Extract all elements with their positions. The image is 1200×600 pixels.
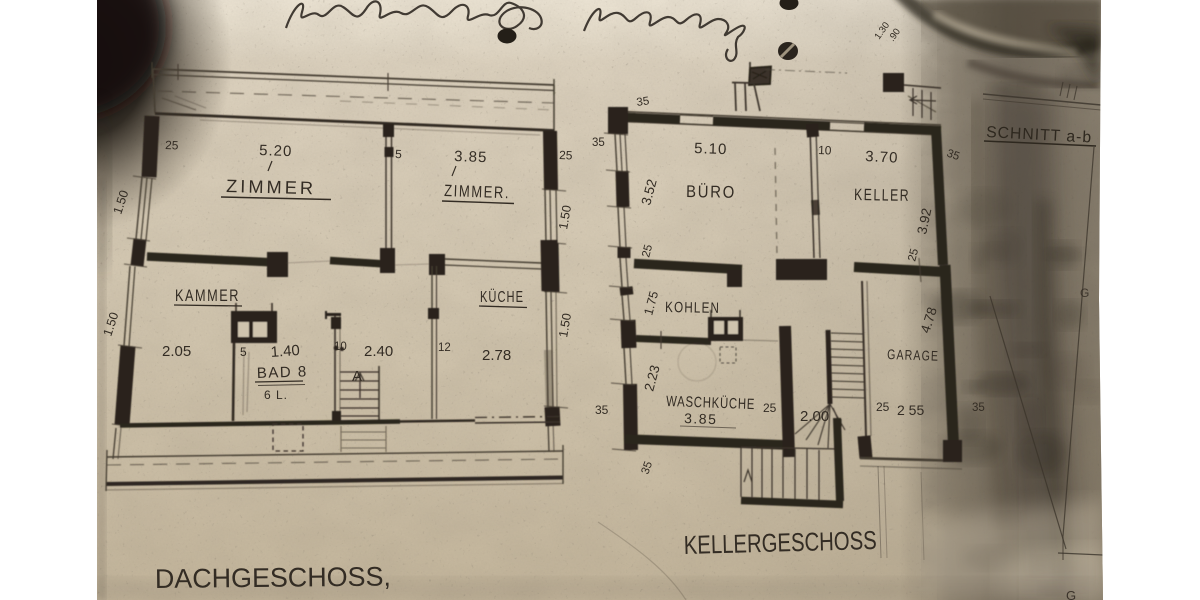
svg-text:A: A xyxy=(352,368,362,385)
svg-text:3.85: 3.85 xyxy=(684,410,718,427)
svg-text:5.20: 5.20 xyxy=(259,142,293,160)
svg-text:KELLER: KELLER xyxy=(854,186,910,205)
svg-text:3.85: 3.85 xyxy=(454,148,488,166)
svg-text:25: 25 xyxy=(763,401,777,415)
svg-text:25: 25 xyxy=(876,400,890,414)
svg-text:GARAGE: GARAGE xyxy=(887,346,940,364)
svg-text:BAD 8: BAD 8 xyxy=(257,363,308,382)
svg-text:2.78: 2.78 xyxy=(482,347,511,364)
svg-text:ZIMMER: ZIMMER xyxy=(226,176,316,198)
svg-text:1.40: 1.40 xyxy=(270,342,300,361)
svg-text:ZIMMER.: ZIMMER. xyxy=(444,182,511,202)
svg-text:BÜRO: BÜRO xyxy=(686,182,736,202)
svg-text:5: 5 xyxy=(395,147,402,161)
svg-text:KELLERGESCHOSS: KELLERGESCHOSS xyxy=(683,525,877,560)
svg-text:DACHGESCHOSS,: DACHGESCHOSS, xyxy=(155,562,391,594)
svg-text:2.40: 2.40 xyxy=(364,343,393,360)
svg-text:5.10: 5.10 xyxy=(694,140,728,158)
svg-text:G: G xyxy=(1066,588,1076,600)
svg-text:3.70: 3.70 xyxy=(865,148,899,167)
svg-text:35: 35 xyxy=(592,137,605,149)
svg-text:2 55: 2 55 xyxy=(897,402,924,418)
svg-text:6 L.: 6 L. xyxy=(264,388,288,402)
svg-text:35: 35 xyxy=(972,402,985,414)
svg-text:35: 35 xyxy=(595,403,609,417)
svg-text:G: G xyxy=(1080,286,1089,300)
svg-text:KOHLEN: KOHLEN xyxy=(665,299,720,317)
svg-text:5: 5 xyxy=(240,345,247,359)
svg-text:35: 35 xyxy=(636,95,650,109)
svg-text:2.05: 2.05 xyxy=(162,343,191,360)
svg-text:10: 10 xyxy=(818,143,832,157)
svg-text:12: 12 xyxy=(438,342,451,354)
svg-text:KÜCHE: KÜCHE xyxy=(480,288,524,306)
svg-text:2.00: 2.00 xyxy=(800,408,829,425)
svg-text:KAMMER: KAMMER xyxy=(175,287,240,305)
svg-text:10: 10 xyxy=(334,341,347,353)
svg-text:25: 25 xyxy=(165,138,179,152)
svg-text:25: 25 xyxy=(559,148,573,162)
